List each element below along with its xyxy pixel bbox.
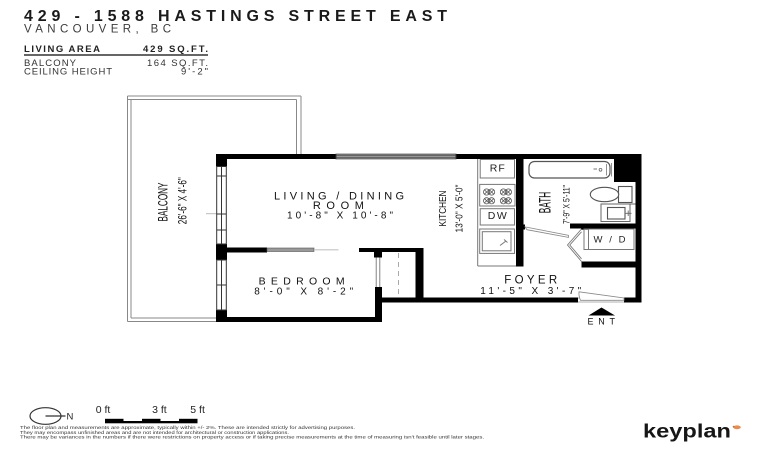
svg-text:0 ft: 0 ft xyxy=(96,404,111,416)
svg-text:9'-2": 9'-2" xyxy=(181,67,208,78)
svg-text:There may be variances in the: There may be variances in the numbers if… xyxy=(20,435,484,440)
svg-text:ENT: ENT xyxy=(588,317,616,327)
svg-text:LIVING / DINING: LIVING / DINING xyxy=(274,191,404,203)
svg-text:RF: RF xyxy=(490,163,505,175)
svg-text:DW: DW xyxy=(488,210,507,222)
svg-text:N: N xyxy=(67,412,74,423)
svg-text:13'-0" X 5'-0": 13'-0" X 5'-0" xyxy=(455,184,466,232)
svg-text:BATH: BATH xyxy=(537,192,555,214)
svg-text:26'-6" X 4'-6": 26'-6" X 4'-6" xyxy=(177,177,189,224)
svg-text:429 - 1588 HASTINGS STREET EAS: 429 - 1588 HASTINGS STREET EAST xyxy=(24,8,447,25)
svg-text:5 ft: 5 ft xyxy=(190,404,205,416)
svg-text:BALCONY: BALCONY xyxy=(155,182,171,221)
svg-text:CEILING HEIGHT: CEILING HEIGHT xyxy=(24,67,112,78)
svg-text:LIVING AREA: LIVING AREA xyxy=(24,44,100,55)
svg-text:keyplan: keyplan xyxy=(643,422,731,443)
svg-text:KITCHEN: KITCHEN xyxy=(438,191,449,227)
svg-text:3 ft: 3 ft xyxy=(152,404,167,416)
svg-text:W/D: W/D xyxy=(594,235,626,246)
svg-text:7'-9" X 5'-11": 7'-9" X 5'-11" xyxy=(562,185,573,224)
